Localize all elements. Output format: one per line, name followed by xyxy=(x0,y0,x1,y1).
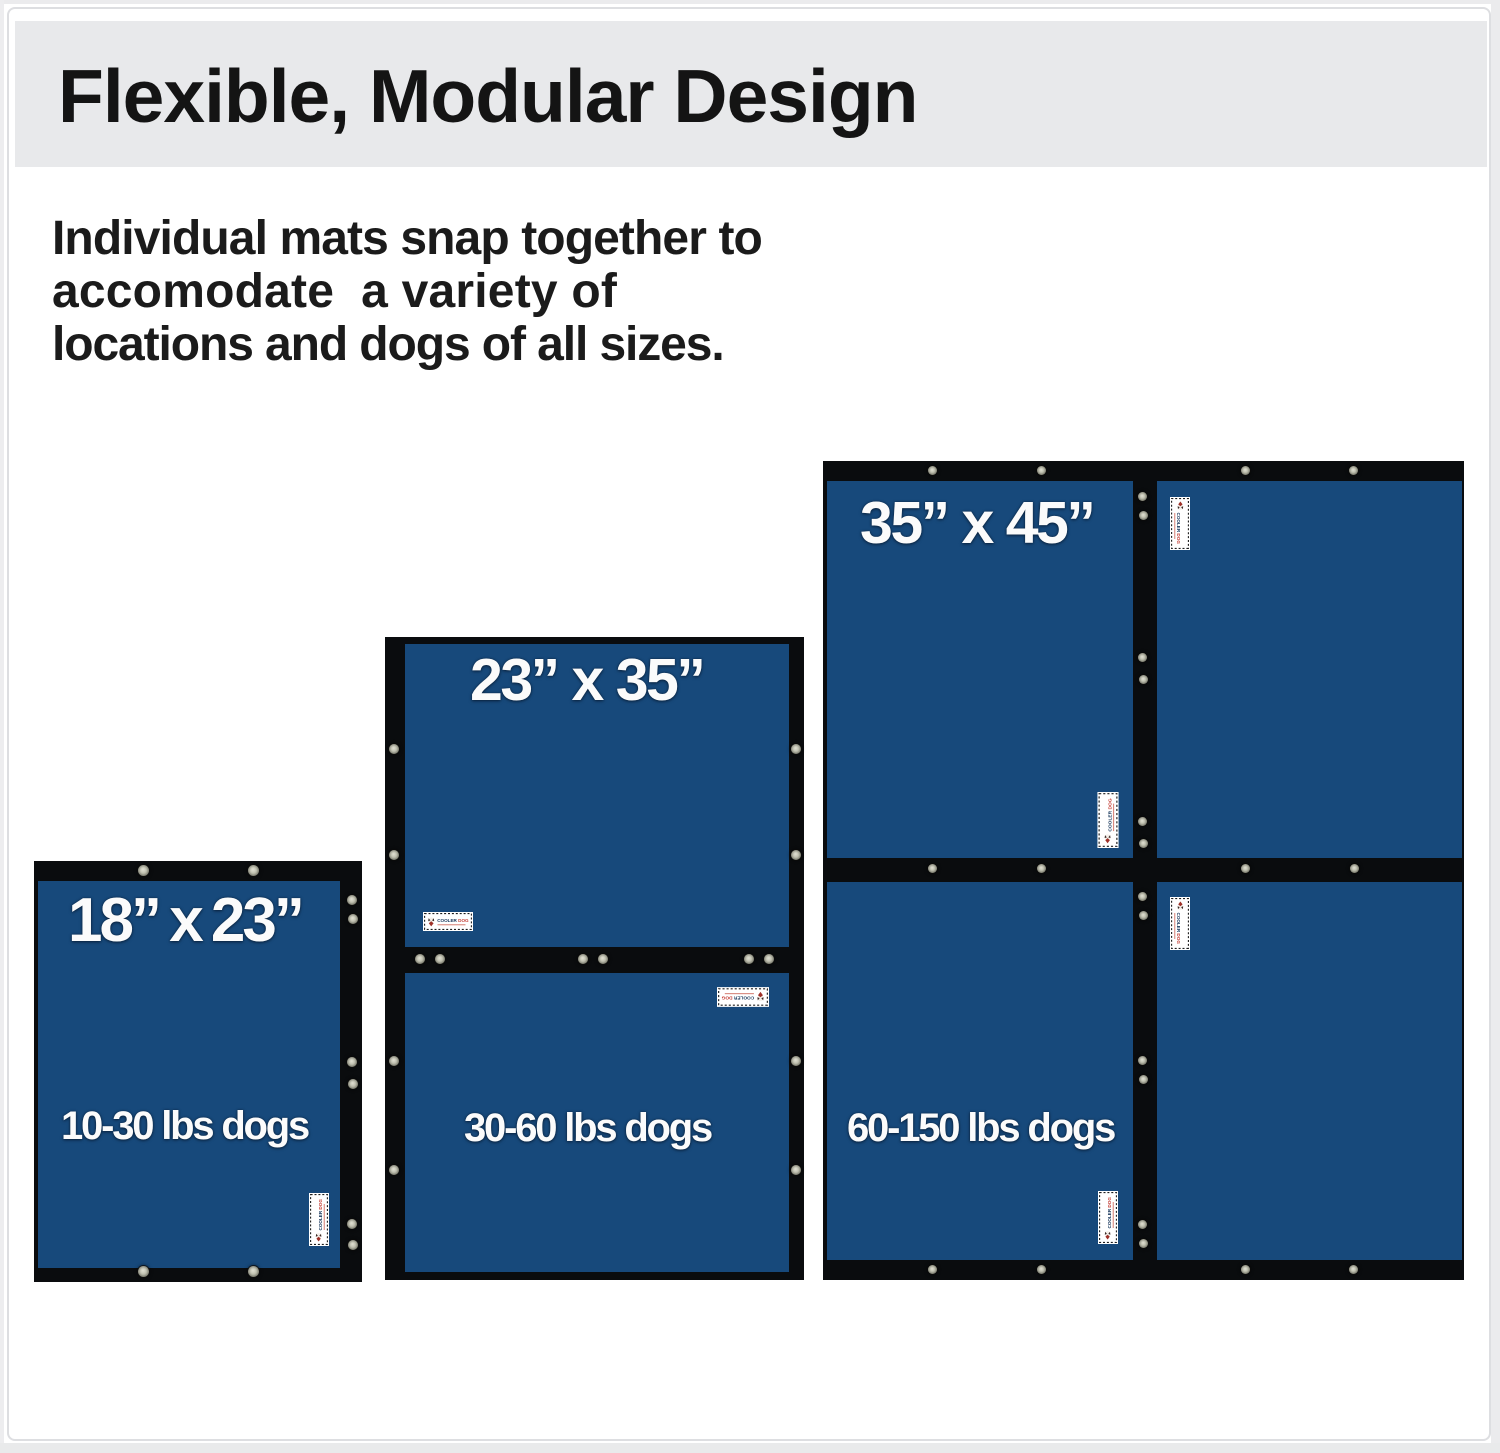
svg-text:COOLER DOG: COOLER DOG xyxy=(1176,513,1181,545)
svg-text:COOLER DOG: COOLER DOG xyxy=(1176,913,1181,945)
svg-text:COOLER DOG: COOLER DOG xyxy=(318,1199,323,1231)
svg-text:COOLER DOG: COOLER DOG xyxy=(1107,1197,1112,1229)
svg-text:COOLER DOG: COOLER DOG xyxy=(1107,798,1113,831)
svg-text:COOLER DOG: COOLER DOG xyxy=(437,918,469,923)
